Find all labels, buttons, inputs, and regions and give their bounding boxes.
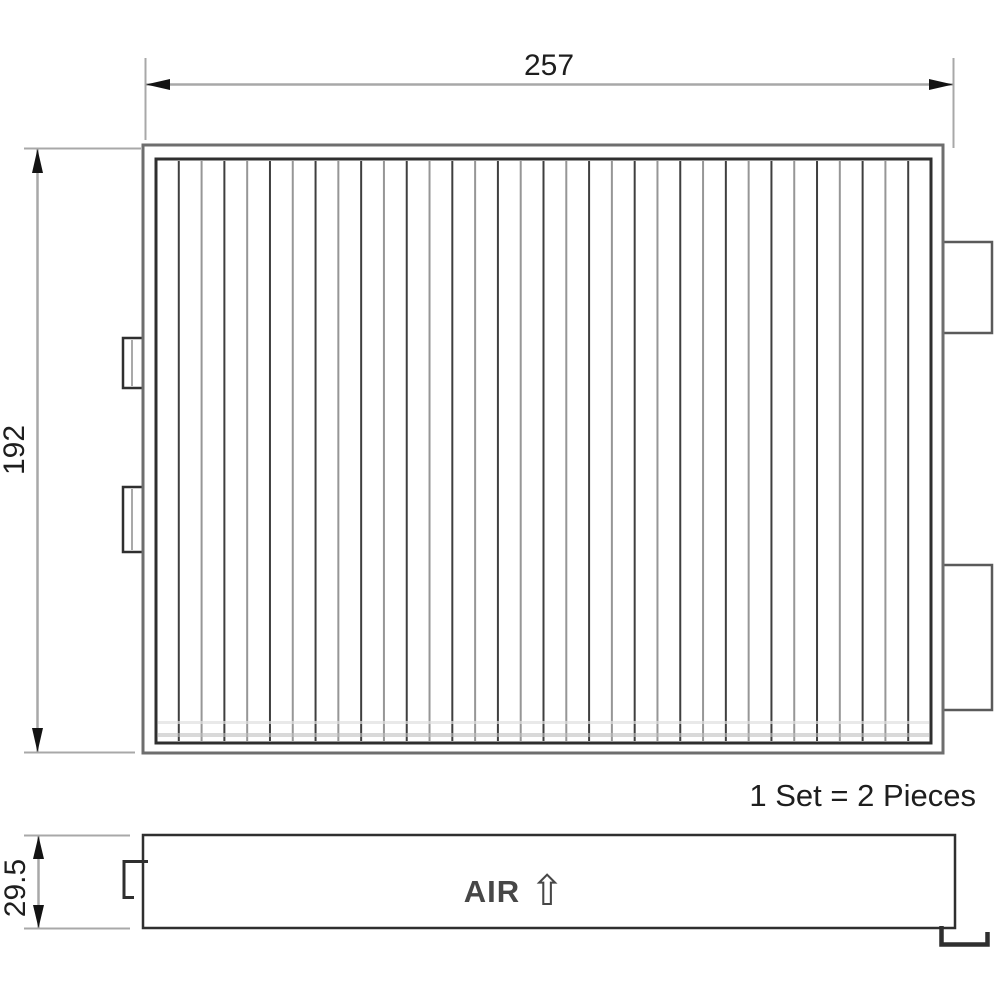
filter-side-view: AIR ⇧ bbox=[124, 835, 988, 945]
air-flow-arrow-icon: ⇧ bbox=[529, 867, 564, 914]
width-arrow-right-icon bbox=[929, 79, 953, 90]
right-tab-upper bbox=[941, 242, 992, 333]
dimension-width: 257 bbox=[146, 49, 954, 148]
width-dim-label: 257 bbox=[524, 49, 574, 82]
dimension-depth: 29.5 bbox=[0, 836, 130, 929]
right-tab-lower bbox=[941, 565, 992, 710]
height-arrow-bottom-icon bbox=[32, 728, 43, 752]
depth-arrow-bottom-icon bbox=[33, 905, 44, 928]
pleat-bottom-shade bbox=[158, 733, 929, 737]
air-flow-label: AIR bbox=[464, 874, 520, 909]
filter-dimension-diagram: 257 192 1 Set = 2 Pieces AIR ⇧ 29.5 bbox=[0, 0, 1000, 1000]
dimension-height: 192 bbox=[0, 149, 141, 753]
left-tab-lower bbox=[123, 487, 144, 552]
glue-line bbox=[158, 721, 929, 724]
height-arrow-top-icon bbox=[32, 149, 43, 173]
width-arrow-left-icon bbox=[146, 79, 170, 90]
diagram-svg: 257 192 1 Set = 2 Pieces AIR ⇧ 29.5 bbox=[0, 0, 1000, 1000]
depth-dim-label: 29.5 bbox=[0, 859, 32, 917]
height-dim-label: 192 bbox=[0, 425, 31, 475]
set-note: 1 Set = 2 Pieces bbox=[749, 778, 976, 813]
filter-top-view bbox=[123, 145, 992, 753]
depth-arrow-top-icon bbox=[33, 836, 44, 859]
left-tab-upper bbox=[123, 338, 144, 388]
